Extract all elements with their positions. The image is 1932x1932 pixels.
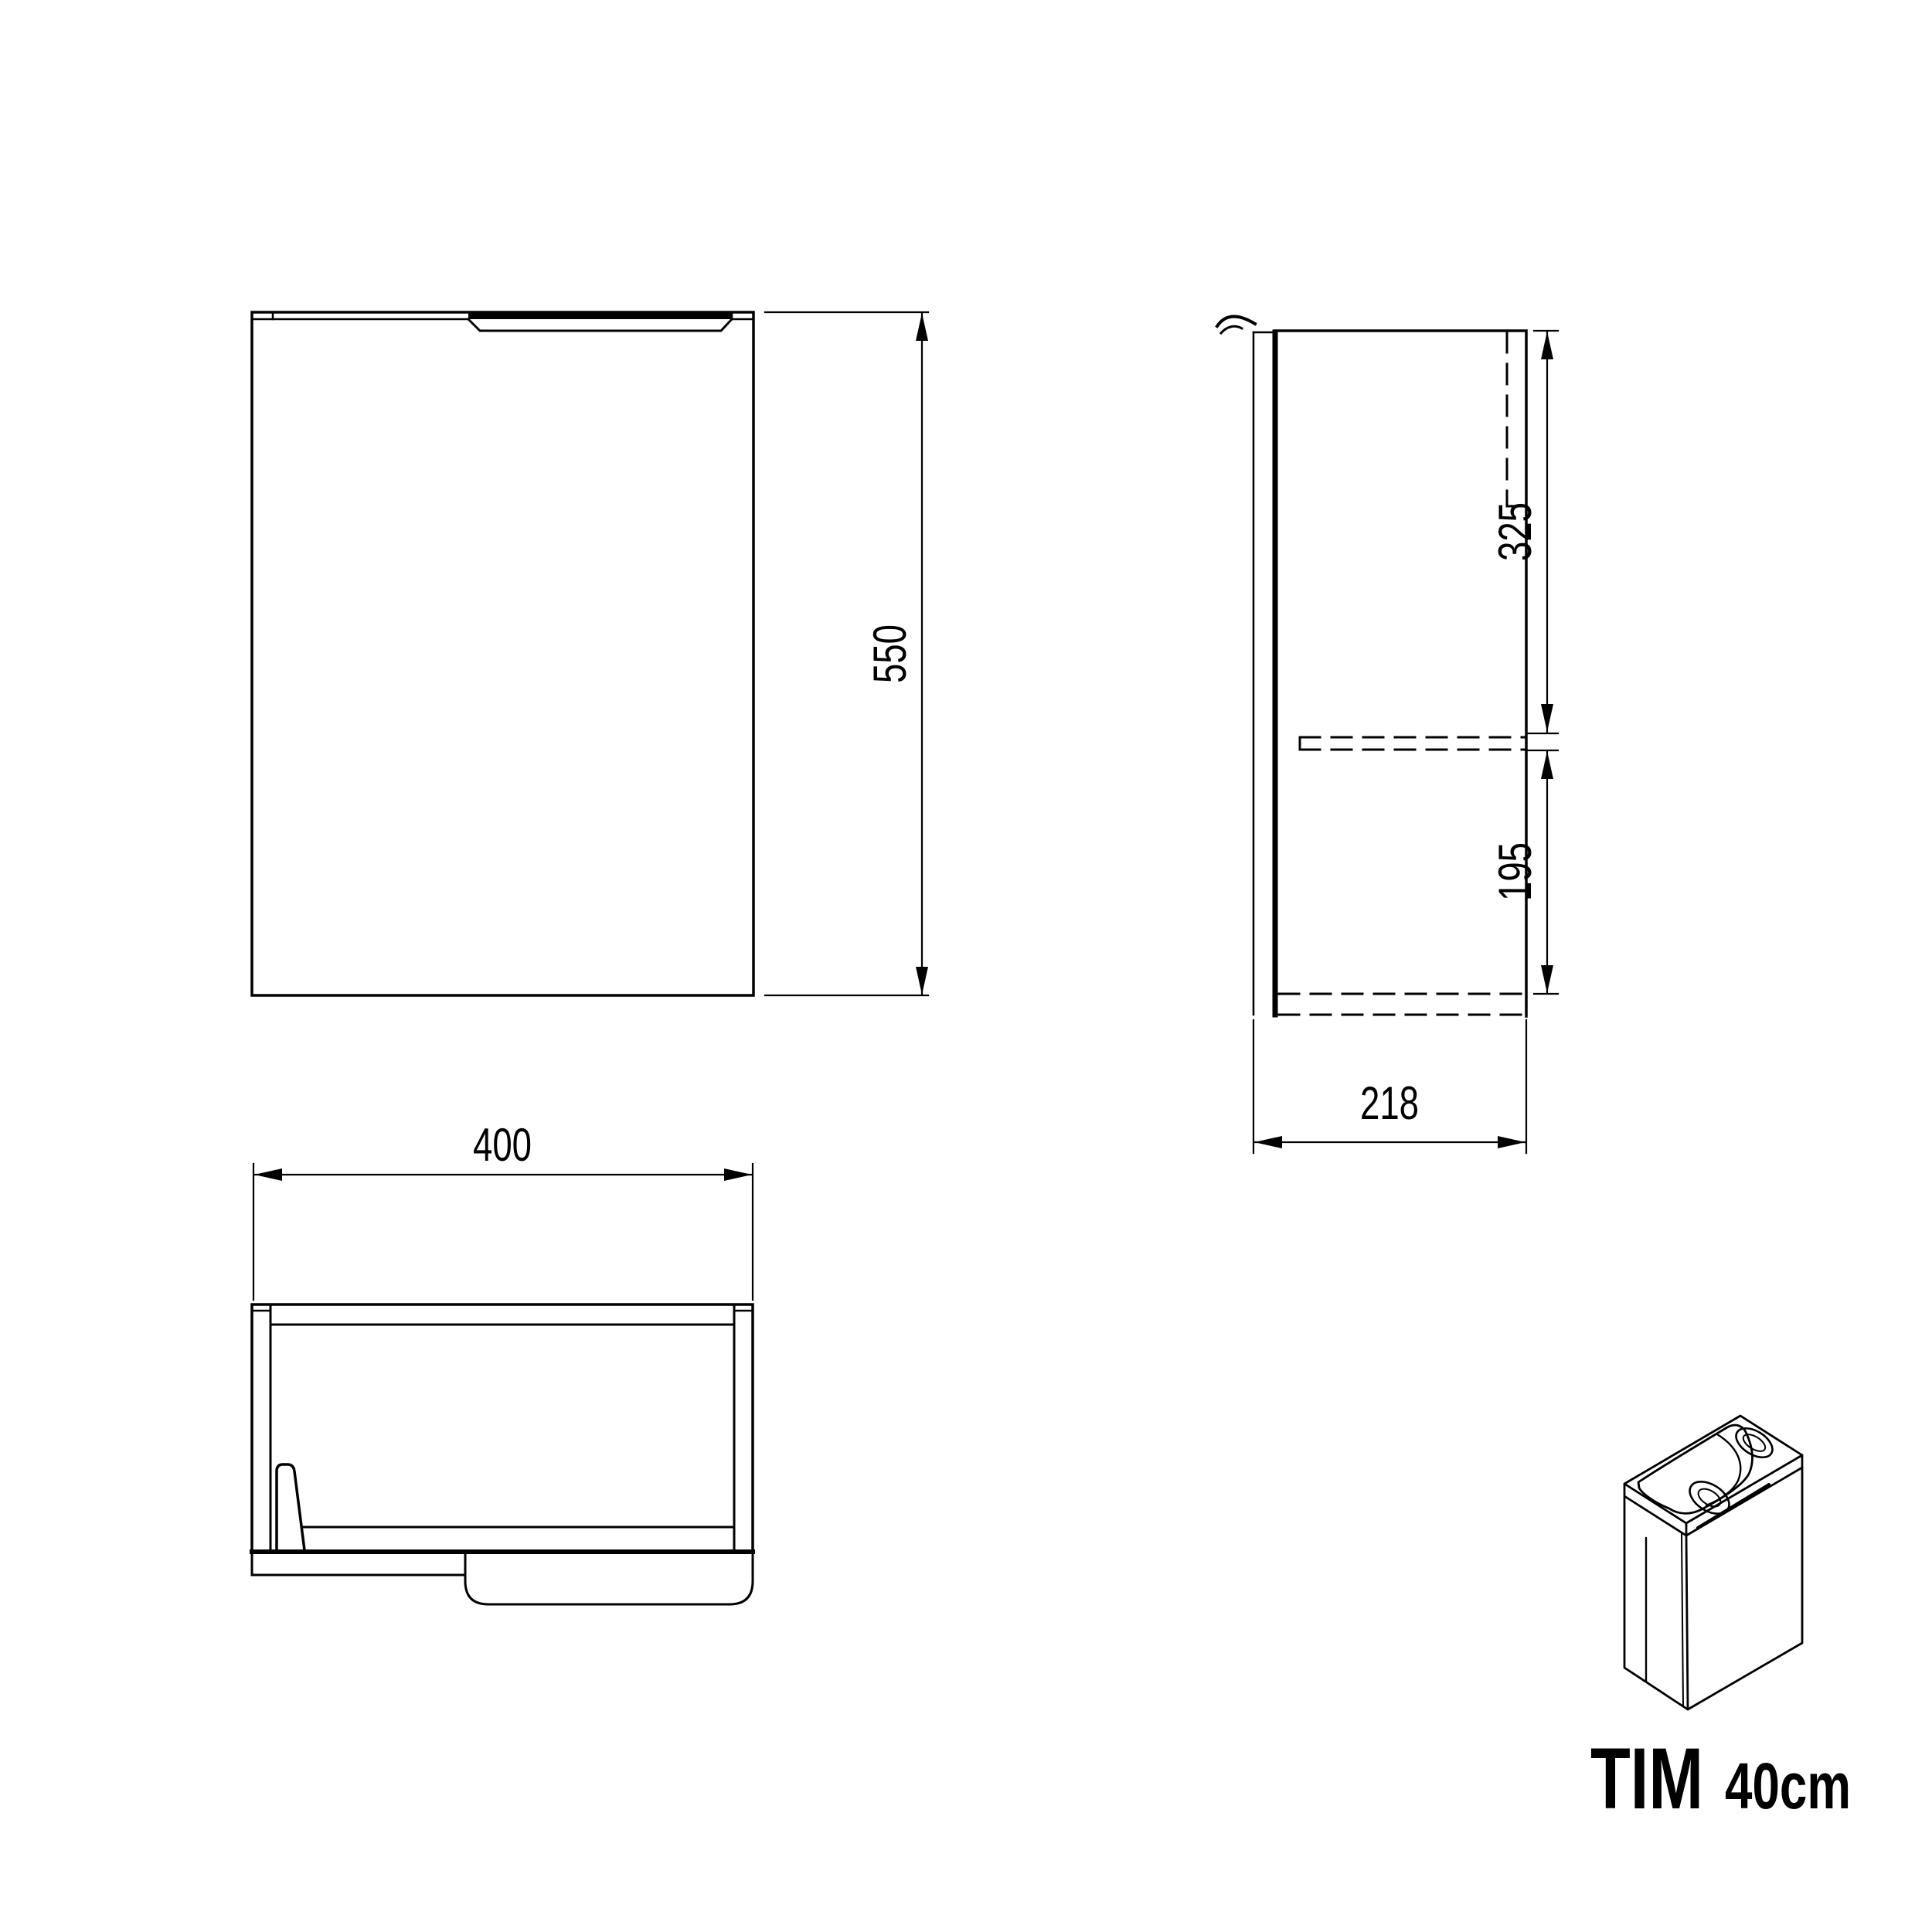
- arrowhead-down: [1541, 965, 1553, 993]
- side-door-handle-lip: [1217, 317, 1255, 326]
- dimension-195: 195: [1489, 750, 1558, 994]
- product-title: TIM 40cm: [1590, 1730, 1851, 1827]
- dim-label-195: 195: [1489, 842, 1541, 901]
- product-size: 40cm: [1725, 1750, 1851, 1822]
- cabinet-front-right-edge: [1686, 1536, 1688, 1709]
- technical-drawing-canvas: 550 325: [0, 0, 1932, 1932]
- arrowhead-left: [1254, 1136, 1282, 1148]
- basin-left-ledge: [252, 1554, 465, 1575]
- side-body-outline: [1275, 331, 1526, 1016]
- product-name: TIM: [1590, 1730, 1703, 1827]
- dimension-218: 218: [1253, 1020, 1526, 1153]
- basin-bowl-bulge: [465, 1554, 753, 1604]
- top-cabinet-outline: [252, 1304, 753, 1552]
- arrowhead-up: [916, 313, 928, 341]
- dimension-550: 550: [765, 312, 928, 995]
- side-hidden-lines: [1279, 332, 1526, 1015]
- side-view: 325 195 218: [1217, 317, 1558, 1153]
- basin-bowl-rim: [1638, 1425, 1752, 1513]
- arrowhead-up: [1541, 332, 1553, 359]
- side-door-handle-lip-inner: [1221, 326, 1242, 333]
- arrowhead-down: [916, 967, 928, 995]
- dimension-325: 325: [1489, 331, 1558, 733]
- arrowhead-right: [1498, 1136, 1526, 1148]
- cabinet-door-gap: [1682, 1533, 1683, 1706]
- dim-label-325: 325: [1489, 502, 1541, 561]
- front-handle-groove: [468, 319, 732, 331]
- front-view: 550: [252, 312, 928, 995]
- dim-label-218: 218: [1360, 1077, 1419, 1129]
- dim-label-400: 400: [473, 1119, 532, 1171]
- front-handle-recess-bar: [468, 312, 732, 319]
- arrowhead-left: [254, 1168, 282, 1181]
- dim-label-550: 550: [864, 624, 916, 683]
- isometric-product-sketch: [1624, 1416, 1802, 1709]
- arrowhead-down: [1541, 704, 1553, 732]
- tap-top-view: [277, 1464, 304, 1550]
- dimension-400: 400: [253, 1119, 753, 1300]
- front-cabinet-outline: [252, 312, 753, 995]
- top-view: 400: [252, 1119, 753, 1604]
- arrowhead-right: [724, 1168, 752, 1181]
- arrowhead-up: [1541, 751, 1553, 779]
